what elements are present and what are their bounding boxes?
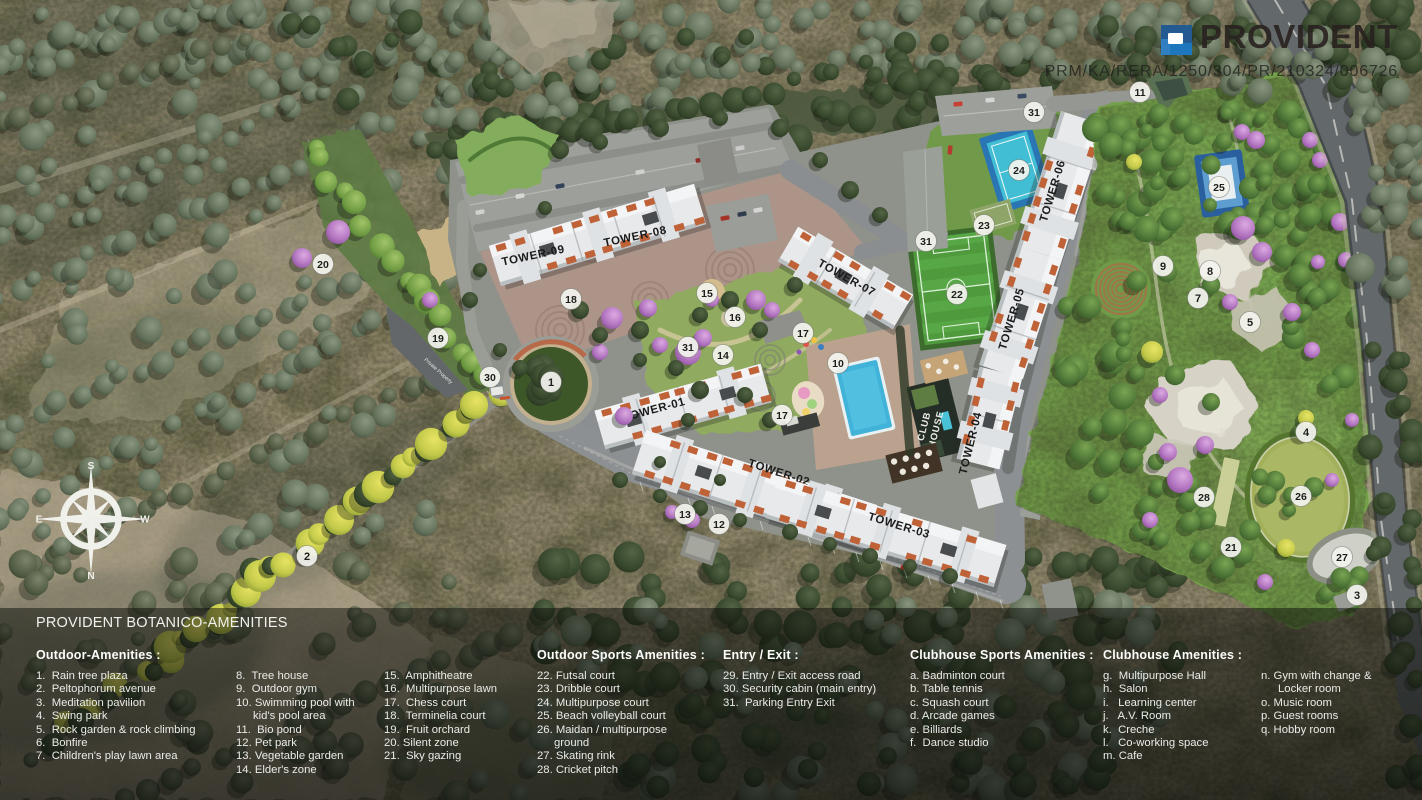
svg-text:22: 22: [951, 289, 963, 301]
svg-text:4: 4: [1303, 427, 1310, 439]
svg-text:11: 11: [1134, 87, 1145, 99]
svg-text:N: N: [87, 571, 94, 582]
svg-text:15: 15: [701, 288, 713, 300]
svg-text:5: 5: [1247, 317, 1253, 329]
svg-text:3: 3: [1354, 590, 1360, 602]
svg-text:10: 10: [832, 358, 844, 370]
svg-text:17: 17: [797, 328, 809, 340]
svg-text:14: 14: [717, 350, 729, 362]
svg-text:2: 2: [304, 551, 310, 563]
svg-text:18: 18: [565, 294, 577, 306]
svg-text:19: 19: [432, 333, 444, 345]
svg-text:17: 17: [776, 410, 788, 422]
svg-text:31: 31: [920, 236, 932, 248]
svg-text:21: 21: [1225, 542, 1237, 554]
svg-text:25: 25: [1213, 182, 1225, 194]
svg-text:8: 8: [1207, 266, 1213, 278]
svg-text:26: 26: [1295, 491, 1307, 503]
svg-text:16: 16: [729, 312, 741, 324]
svg-text:1: 1: [548, 377, 554, 389]
svg-text:E: E: [36, 515, 43, 526]
svg-text:9: 9: [1160, 261, 1166, 273]
svg-text:27: 27: [1336, 552, 1348, 564]
svg-text:23: 23: [978, 220, 990, 232]
svg-text:12: 12: [713, 519, 725, 531]
svg-text:20: 20: [317, 259, 329, 271]
svg-text:31: 31: [682, 342, 694, 354]
svg-text:30: 30: [484, 372, 496, 384]
svg-text:31: 31: [1028, 107, 1040, 119]
svg-text:7: 7: [1195, 293, 1201, 305]
svg-text:S: S: [88, 461, 95, 472]
svg-text:13: 13: [679, 509, 691, 521]
svg-text:W: W: [140, 515, 150, 526]
svg-text:28: 28: [1198, 492, 1210, 504]
svg-text:24: 24: [1013, 165, 1025, 177]
